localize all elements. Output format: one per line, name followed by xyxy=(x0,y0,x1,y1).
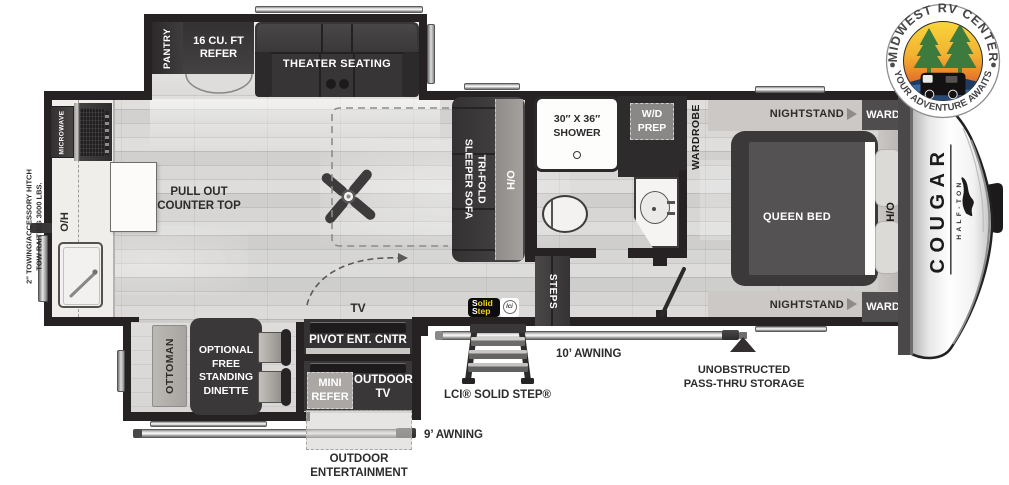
svg-text:HALF-TON: HALF-TON xyxy=(956,179,963,239)
svg-text:COUGAR: COUGAR xyxy=(927,146,949,274)
